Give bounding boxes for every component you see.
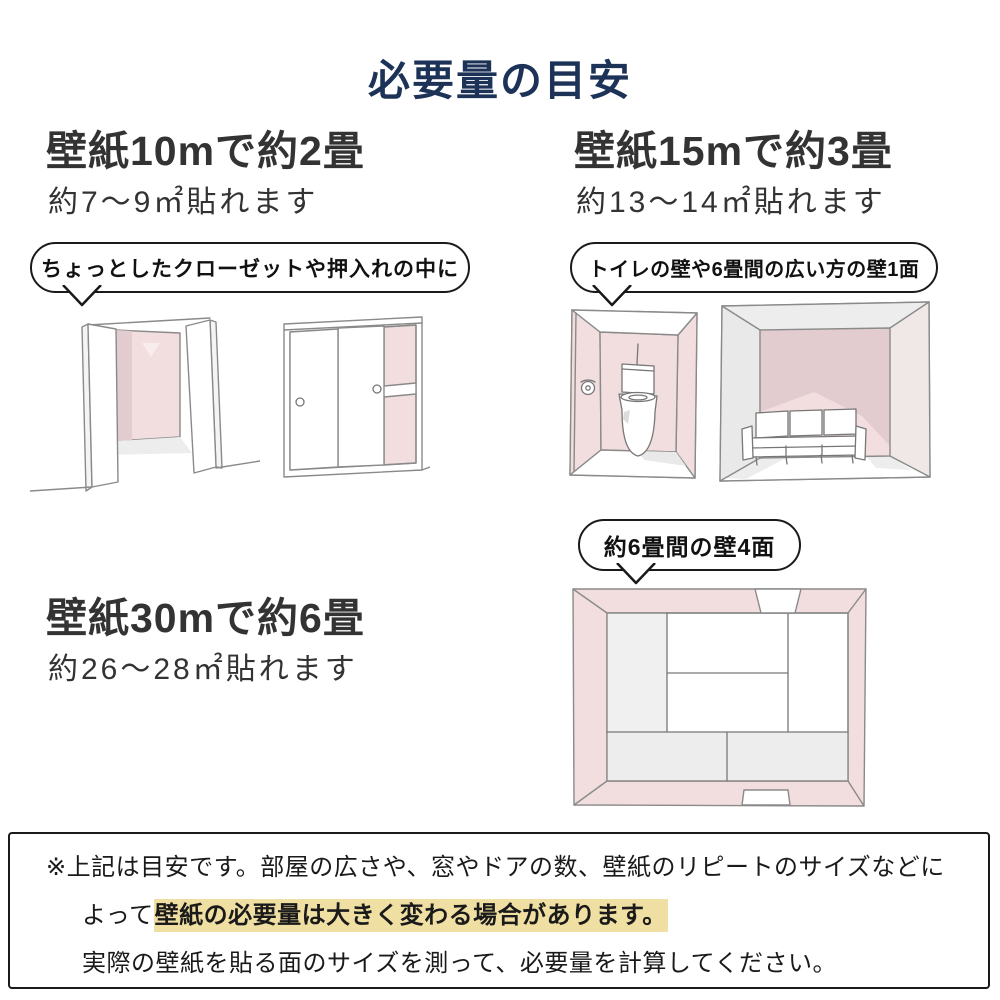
speech-bubble-tail (590, 285, 634, 308)
note-highlight-text: 壁紙の必要量は大きく変わる場合があります。 (154, 899, 668, 932)
speech-bubble-tail (60, 285, 104, 308)
section-15m-subtitle: 約13〜14㎡貼れます (576, 186, 886, 219)
section-10m-heading: 壁紙10mで約2畳 (46, 129, 365, 174)
note-line-1: ※上記は目安です。部屋の広さや、窓やドアの数、壁紙のリピートのサイズなどに (82, 844, 968, 892)
page-title: 必要量の目安 (0, 58, 1000, 104)
section-30m-speech-bubble: 約6畳間の壁4面 (578, 519, 801, 571)
living-room-illustration (716, 298, 934, 486)
toilet-room-illustration (568, 300, 704, 485)
speech-bubble-label: ちょっとしたクローゼットや押入れの中に (41, 253, 459, 283)
note-box: ※上記は目安です。部屋の広さや、窓やドアの数、壁紙のリピートのサイズなどに よっ… (8, 832, 990, 989)
sliding-closet-illustration (280, 310, 430, 485)
section-15m-heading: 壁紙15mで約3畳 (574, 129, 893, 174)
section-30m-subtitle: 約26〜28㎡貼れます (48, 653, 358, 686)
note-line-2: よって壁紙の必要量は大きく変わる場合があります。 (82, 892, 968, 940)
section-30m-heading: 壁紙30mで約6畳 (46, 596, 365, 641)
speech-bubble-label: トイレの壁や6畳間の広い方の壁1面 (589, 253, 920, 282)
speech-bubble-label: 約6畳間の壁4面 (604, 528, 776, 562)
wallpaper-quantity-guide-page: 必要量の目安 壁紙10mで約2畳 約7〜9㎡貼れます ちょっとしたクローゼットや… (0, 0, 1000, 1000)
note-line-2-prefix: よって (82, 902, 154, 929)
section-10m-subtitle: 約7〜9㎡貼れます (48, 186, 318, 219)
tatami-room-illustration (568, 585, 870, 810)
speech-bubble-tail (614, 563, 658, 586)
open-closet-illustration (30, 305, 260, 505)
note-line-3: 実際の壁紙を貼る面のサイズを測って、必要量を計算してください。 (82, 940, 968, 988)
